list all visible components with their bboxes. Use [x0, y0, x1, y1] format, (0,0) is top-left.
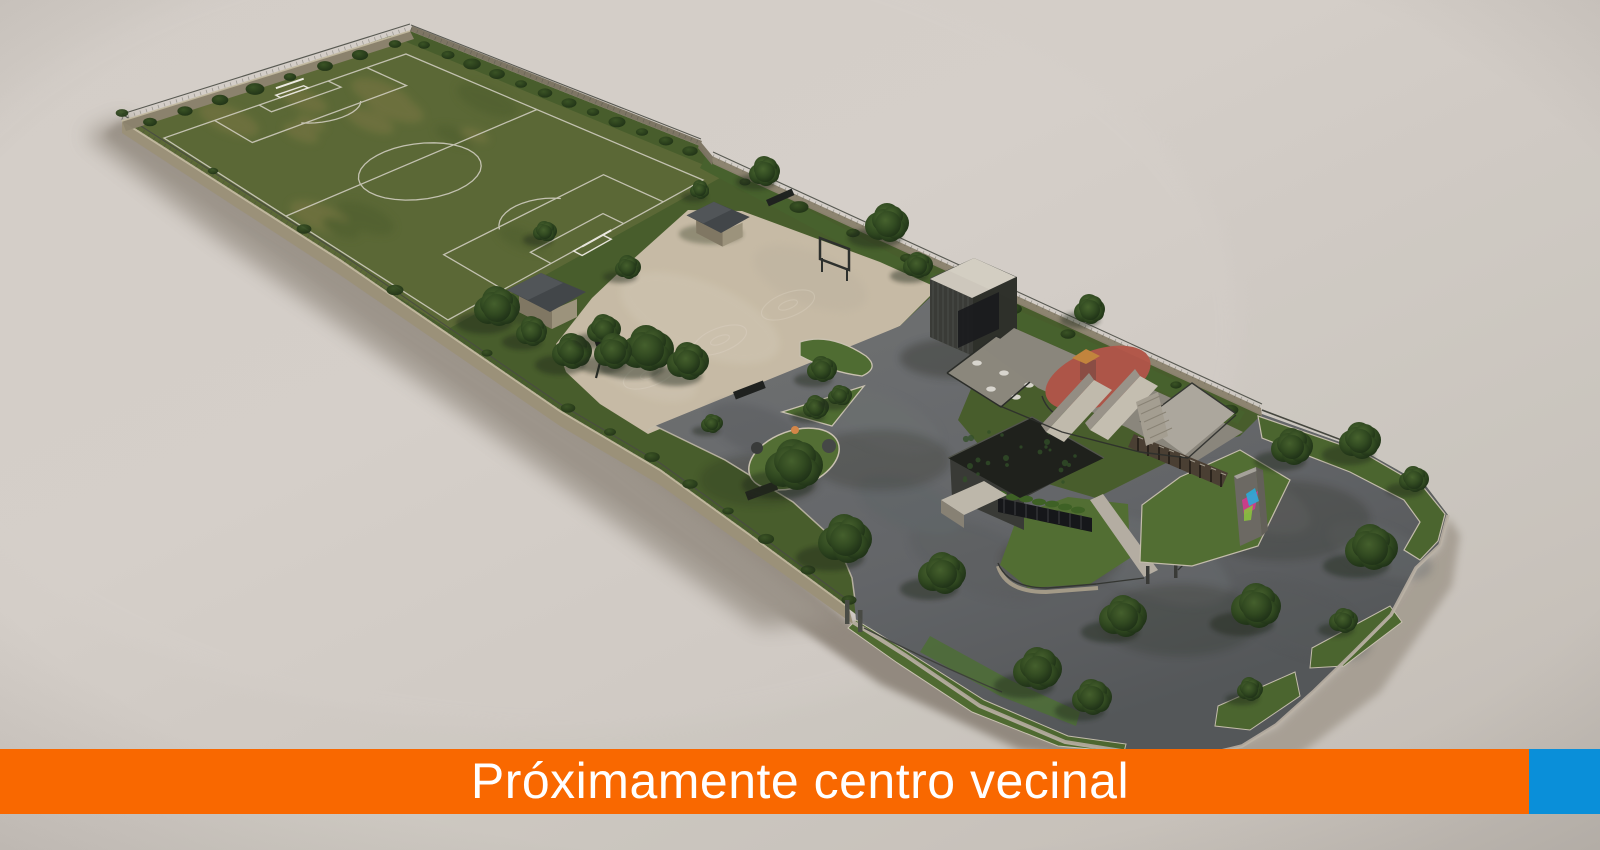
svg-text:Próximamente centro vecinal: Próximamente centro vecinal [471, 753, 1129, 809]
